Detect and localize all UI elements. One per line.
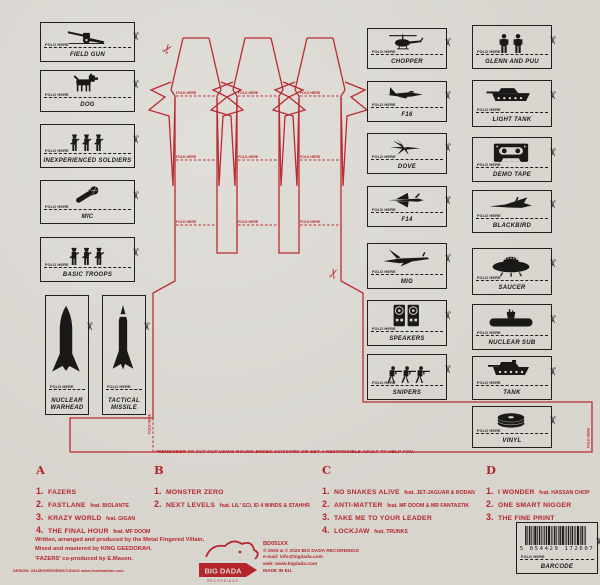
- fold-here-label: FOLD HERE: [45, 205, 69, 209]
- fold-here-label: FOLD HERE: [477, 163, 501, 167]
- cutout-label: DOG: [41, 102, 134, 109]
- cutout-label: FIELD GUN: [41, 52, 134, 59]
- snipers-icon: [370, 356, 442, 384]
- cutout-box-dog: FOLD HERE DOG: [40, 70, 135, 112]
- cutout-label: GLENN AND PUU: [473, 59, 551, 66]
- fold-here-label: FOLD HERE: [477, 214, 501, 218]
- track-featuring: feat. LIL' SCI, ID 4 WINDS & STAHHR: [220, 503, 310, 509]
- track-title: LOCKJAW: [334, 528, 370, 535]
- cutout-label: F16: [368, 112, 446, 119]
- fold-here-label: FOLD HERE: [521, 555, 545, 559]
- logo-sub-text: RECORDINGS: [207, 579, 239, 583]
- cutout-box-vinyl: FOLD HERE VINYL: [472, 406, 552, 448]
- fold-line: FOLD HERE: [476, 433, 548, 434]
- fold-line: FOLD HERE: [371, 107, 443, 108]
- troops-icon: [43, 239, 130, 266]
- fold-here-label: FOLD HERE: [176, 91, 197, 95]
- fold-here-label: FOLD HERE: [477, 50, 501, 54]
- scissors-icon: ✂: [441, 91, 452, 100]
- fold-here-label: FOLD HERE: [477, 331, 501, 335]
- fold-line: FOLD HERE: [106, 389, 142, 390]
- fold-line: FOLD HERE: [476, 112, 548, 113]
- fold-line: FOLD HERE: [371, 159, 443, 160]
- cutout-box-blackbird: FOLD HERE BLACKBIRD: [472, 190, 552, 233]
- cutout-label: MIG: [368, 279, 446, 286]
- fold-here-label: FOLD HERE: [238, 91, 259, 95]
- track-row: 3. THE FINE PRINT: [486, 507, 555, 525]
- scissors-icon: ✂: [129, 80, 140, 89]
- warhead-icon: [48, 297, 84, 388]
- fold-here-label: FOLD HERE: [477, 108, 501, 112]
- fold-line: FOLD HERE: [371, 385, 443, 386]
- cutout-label: F14: [368, 217, 446, 224]
- cutout-label: TACTICAL MISSILE: [103, 398, 145, 412]
- logo-text: BIG DADA: [204, 567, 242, 576]
- fold-here-label: FOLD HERE: [50, 385, 74, 389]
- side-b-header: B: [154, 463, 164, 477]
- scissors-icon: ✂: [441, 311, 452, 320]
- cutout-label: DEMO TAPE: [473, 172, 551, 179]
- scissors-icon: ✂: [546, 416, 557, 425]
- side-a-header: A: [36, 463, 45, 477]
- fold-line: FOLD HERE: [476, 335, 548, 336]
- cutout-box-mic: FOLD HERE MIC: [40, 180, 135, 224]
- cutout-box-nuclear-warhead: FOLD HERE NUCLEAR WARHEAD: [45, 295, 89, 415]
- scissors-icon: ✂: [158, 40, 177, 58]
- scissors-icon: ✂: [441, 38, 452, 47]
- album-back-cover: FOLD HEREFOLD HEREFOLD HEREFOLD HEREFOLD…: [0, 0, 600, 585]
- cutout-label: BASIC TROOPS: [41, 272, 134, 279]
- barcode-icon: [523, 526, 589, 545]
- fold-here-label: FOLD HERE: [238, 220, 259, 224]
- big-dada-logo: BIG DADA RECORDINGS: [196, 540, 260, 584]
- cutout-label: INEXPERIENCED SOLDIERS: [41, 158, 134, 165]
- scissors-icon: ✂: [592, 537, 600, 546]
- cutout-box-basic-troops: FOLD HERE BASIC TROOPS: [40, 237, 135, 282]
- scissors-icon: ✂: [546, 200, 557, 209]
- cutout-box-nuclear-sub: FOLD HERE NUCLEAR SUB: [472, 304, 552, 350]
- side-d-header: D: [486, 463, 496, 477]
- cutout-label: LIGHT TANK: [473, 117, 551, 124]
- scissors-icon: ✂: [546, 259, 557, 268]
- track-featuring: feat. TRUNKS: [374, 529, 408, 535]
- track-title: THE FINE PRINT: [498, 515, 555, 522]
- cutout-label: SNIPERS: [368, 390, 446, 397]
- cutout-box-tactical-missile: FOLD HERE TACTICAL MISSILE: [102, 295, 146, 415]
- scissors-icon: ✂: [441, 196, 452, 205]
- scissors-icon: ✂: [129, 248, 140, 257]
- scissors-icon: ✂: [129, 32, 140, 41]
- track-number: 4.: [322, 525, 330, 535]
- fold-here-label: FOLD HERE: [45, 43, 69, 47]
- cutout-box-tank: FOLD HERE TANK: [472, 356, 552, 400]
- track-title: NEXT LEVELS: [166, 502, 215, 509]
- cutout-box-speakers: FOLD HERE SPEAKERS: [367, 300, 447, 346]
- cutout-box-dove: FOLD HERE DOVE: [367, 133, 447, 174]
- cutout-label: BLACKBIRD: [473, 223, 551, 230]
- fold-line: FOLD HERE: [476, 54, 548, 55]
- track-row: 2. NEXT LEVELS feat. LIL' SCI, ID 4 WIND…: [154, 494, 310, 512]
- cutout-box-glenn-and-puu: FOLD HERE GLENN AND PUU: [472, 25, 552, 69]
- fold-here-label: FOLD HERE: [372, 103, 396, 107]
- fold-here-label: FOLD HERE: [477, 429, 501, 433]
- logo-doodle: [206, 541, 258, 559]
- cutout-label: TANK: [473, 390, 551, 397]
- fold-line: FOLD HERE: [44, 153, 131, 154]
- fold-here-label: FOLD HERE: [300, 91, 321, 95]
- cutout-box-light-tank: FOLD HERE LIGHT TANK: [472, 80, 552, 127]
- cutout-label: BARCODE: [517, 564, 597, 571]
- cutout-label: VINYL: [473, 438, 551, 445]
- fold-line: FOLD HERE: [371, 331, 443, 332]
- cut-note: *REMEMBER TO CUT OUT USING ROUND-ENDED S…: [135, 449, 435, 454]
- scissors-icon: ✂: [129, 135, 140, 144]
- fold-here-label: FOLD HERE: [372, 381, 396, 385]
- fold-line: FOLD HERE: [371, 54, 443, 55]
- track-featuring: feat. MF DOOM: [113, 529, 150, 535]
- scissors-icon: ✂: [441, 143, 452, 152]
- fold-line: FOLD HERE: [476, 385, 548, 386]
- cutout-box-barcode: 5 054429 172607 FOLD HERE BARCODE: [516, 522, 598, 574]
- fold-line: FOLD HERE: [44, 267, 131, 268]
- scissors-icon: ✂: [546, 367, 557, 376]
- saucer-icon: [475, 250, 547, 279]
- fold-line: FOLD HERE: [44, 209, 131, 210]
- mig-icon: [370, 245, 442, 273]
- cutout-label: CHOPPER: [368, 59, 446, 66]
- cutout-box-f14: FOLD HERE F14: [367, 186, 447, 227]
- fold-here-label: FOLD HERE: [148, 413, 152, 434]
- fold-line: FOLD HERE: [44, 97, 131, 98]
- nuclear-sub-icon: [475, 306, 547, 334]
- cutout-label: NUCLEAR WARHEAD: [46, 398, 88, 412]
- fold-here-label: FOLD HERE: [372, 50, 396, 54]
- made-in-line: MADE IN EU.: [263, 569, 359, 576]
- fold-line: FOLD HERE: [371, 212, 443, 213]
- email-line: e-mail: info@bigdada.com: [263, 555, 359, 562]
- cutout-label: NUCLEAR SUB: [473, 340, 551, 347]
- track-number: 2.: [154, 499, 162, 509]
- track-number: 4.: [36, 525, 44, 535]
- fold-line: FOLD HERE: [476, 218, 548, 219]
- cutout-box-field-gun: FOLD HERE FIELD GUN: [40, 22, 135, 62]
- fold-here-label: FOLD HERE: [45, 149, 69, 153]
- label-info-block: BD051XX ℗ 2003 & © 2023 BIG DADA RECORDI…: [263, 541, 359, 575]
- scissors-icon: ✂: [129, 191, 140, 200]
- light-tank-icon: [475, 82, 547, 111]
- fold-here-label: FOLD HERE: [587, 427, 591, 448]
- fold-here-label: FOLD HERE: [107, 385, 131, 389]
- fold-here-label: FOLD HERE: [300, 155, 321, 159]
- scissors-icon: ✂: [546, 36, 557, 45]
- fold-line: FOLD HERE: [476, 167, 548, 168]
- scissors-icon: ✂: [441, 365, 452, 374]
- fold-here-label: FOLD HERE: [372, 155, 396, 159]
- cutout-label: SAUCER: [473, 285, 551, 292]
- track-row: 4. THE FINAL HOUR feat. MF DOOM: [36, 520, 150, 538]
- track-row: 4. LOCKJAW feat. TRUNKS: [322, 520, 408, 538]
- credits-line-2: Mixed and mastered by KING GEEDORAH.: [35, 545, 204, 554]
- fold-line: FOLD HERE: [520, 559, 594, 560]
- fold-line: FOLD HERE: [371, 274, 443, 275]
- design-credit: DESIGN: 2513RIVERVIEWSTUDIOS www.fivedea…: [13, 568, 124, 573]
- cutout-box-mig: FOLD HERE MIG: [367, 243, 447, 289]
- missile-icon: [105, 297, 141, 388]
- fold-here-label: FOLD HERE: [176, 155, 197, 159]
- cutout-box-f16: FOLD HERE F16: [367, 81, 447, 122]
- fold-here-label: FOLD HERE: [238, 155, 259, 159]
- barcode-number: 5 054429 172607: [517, 546, 597, 552]
- cutout-label: MIC: [41, 214, 134, 221]
- cutout-box-demo-tape: FOLD HERE DEMO TAPE: [472, 137, 552, 182]
- fold-line: FOLD HERE: [49, 389, 85, 390]
- fold-here-label: FOLD HERE: [372, 270, 396, 274]
- cutout-label: SPEAKERS: [368, 336, 446, 343]
- side-c-header: C: [322, 463, 331, 477]
- track-number: 3.: [486, 512, 494, 522]
- track-title: THE FINAL HOUR: [48, 528, 109, 535]
- cutout-box-saucer: FOLD HERE SAUCER: [472, 248, 552, 295]
- scissors-icon: ✂: [546, 91, 557, 100]
- scissors-icon: ✂: [140, 322, 151, 331]
- fold-here-label: FOLD HERE: [300, 220, 321, 224]
- fold-here-label: FOLD HERE: [372, 208, 396, 212]
- cutout-box-inexperienced-soldiers: FOLD HERE INEXPERIENCED SOLDIERS: [40, 124, 135, 168]
- cutout-label: DOVE: [368, 164, 446, 171]
- credits-line-3: 'FAZERS' co-produced by E.Mason.: [35, 555, 204, 564]
- web-line: web: www.bigdada.com: [263, 562, 359, 569]
- fold-here-label: FOLD HERE: [477, 381, 501, 385]
- cutout-box-chopper: FOLD HERE CHOPPER: [367, 28, 447, 69]
- scissors-icon: ✂: [441, 254, 452, 263]
- fold-here-label: FOLD HERE: [45, 263, 69, 267]
- fold-line: FOLD HERE: [44, 47, 131, 48]
- fold-line: FOLD HERE: [476, 280, 548, 281]
- scissors-icon: ✂: [83, 322, 94, 331]
- fold-here-label: FOLD HERE: [45, 93, 69, 97]
- scissors-icon: ✂: [325, 266, 343, 281]
- fold-here-label: FOLD HERE: [372, 327, 396, 331]
- fold-here-label: FOLD HERE: [477, 276, 501, 280]
- credits-block: Written, arranged and produced by the Me…: [35, 536, 204, 564]
- demo-tape-icon: [475, 139, 547, 166]
- cutout-box-snipers: FOLD HERE SNIPERS: [367, 354, 447, 400]
- speakers-icon: [370, 302, 442, 330]
- scissors-icon: ✂: [546, 315, 557, 324]
- catalog-number: BD051XX: [263, 541, 359, 549]
- fold-here-label: FOLD HERE: [176, 220, 197, 224]
- scissors-icon: ✂: [546, 148, 557, 157]
